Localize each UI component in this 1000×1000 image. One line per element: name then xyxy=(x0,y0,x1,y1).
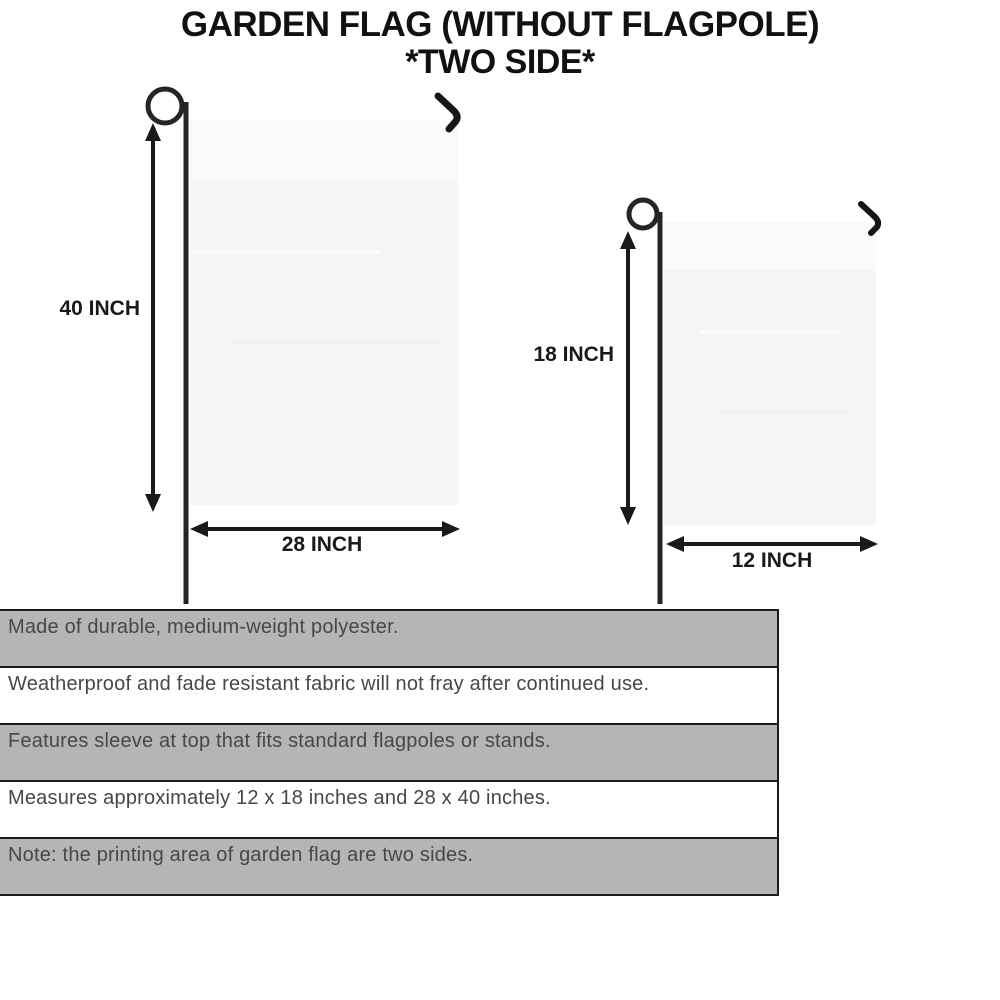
large-flag-sleeve xyxy=(190,120,458,180)
feature-row-weatherproof: Weatherproof and fade resistant fabric w… xyxy=(0,666,779,725)
small-height-arrow xyxy=(620,231,636,525)
large-flag-group xyxy=(145,89,460,604)
feature-row-material: Made of durable, medium-weight polyester… xyxy=(0,609,779,668)
feature-row-measures: Measures approximately 12 x 18 inches an… xyxy=(0,780,779,839)
large-pole-loop-icon xyxy=(148,89,182,123)
feature-row-sleeve: Features sleeve at top that fits standar… xyxy=(0,723,779,782)
small-flag-sleeve xyxy=(664,222,876,270)
large-flag-height-label: 40 INCH xyxy=(36,297,140,321)
small-flag-crease xyxy=(720,410,850,414)
feature-list: Made of durable, medium-weight polyester… xyxy=(0,609,779,896)
small-flag-crease xyxy=(700,330,840,334)
small-flag-height-label: 18 INCH xyxy=(510,343,614,367)
product-infographic: GARDEN FLAG (WITHOUT FLAGPOLE) *TWO SIDE… xyxy=(0,0,1000,1000)
small-pole-loop-icon xyxy=(629,200,657,228)
small-flag-group xyxy=(620,200,878,604)
large-flag-width-label: 28 INCH xyxy=(222,533,422,557)
feature-row-note: Note: the printing area of garden flag a… xyxy=(0,837,779,896)
small-flag-width-label: 12 INCH xyxy=(672,549,872,573)
large-flag-crease xyxy=(230,340,440,344)
large-height-arrow xyxy=(145,123,161,512)
large-flag-crease xyxy=(190,250,380,254)
